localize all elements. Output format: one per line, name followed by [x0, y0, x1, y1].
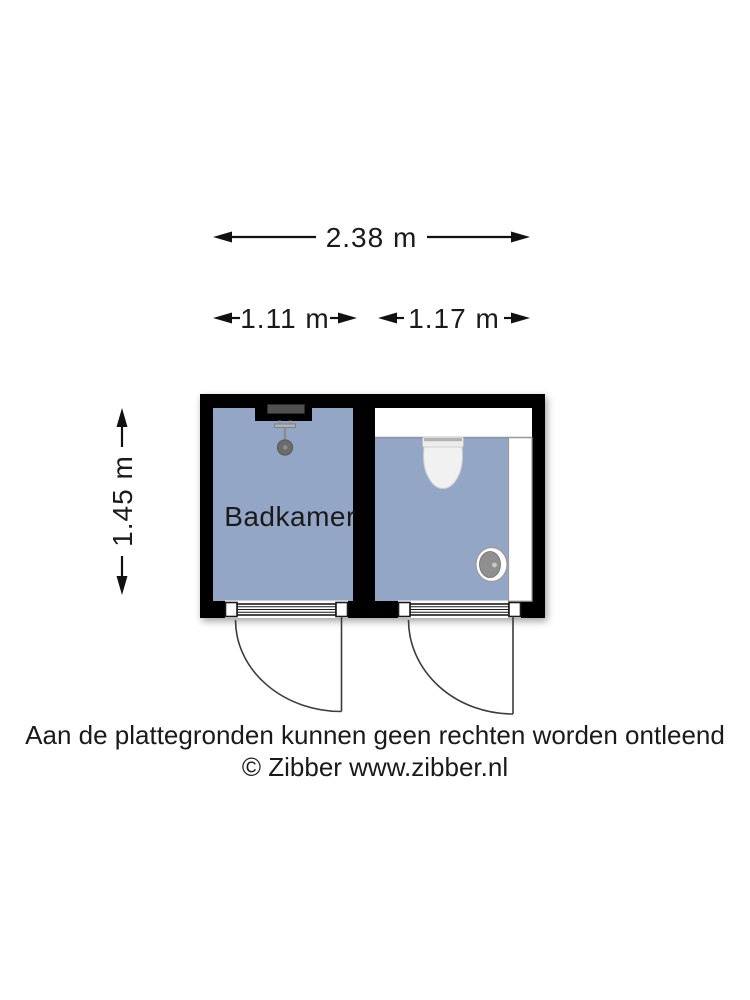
- sink-drain: [492, 563, 497, 568]
- door-arc: [236, 620, 342, 712]
- shower-niche-shelf: [268, 405, 305, 414]
- door-sill-right: [399, 603, 521, 617]
- arrow-right-icon: [511, 232, 530, 243]
- arrow-right-icon: [338, 313, 357, 324]
- toilet-lid-hinge: [424, 438, 462, 441]
- door-arc: [409, 620, 514, 714]
- disclaimer-text: Aan de plattegronden kunnen geen rechten…: [25, 720, 725, 750]
- arrow-left-icon: [378, 313, 397, 324]
- arrow-up-icon: [117, 408, 128, 427]
- copyright-text: © Zibber www.zibber.nl: [242, 752, 508, 782]
- door-swing-right: [409, 617, 514, 715]
- arrow-left-icon: [213, 232, 232, 243]
- dimension-label-badkamer-width: 1.11 m: [240, 303, 330, 334]
- dimension-badkamer-width: 1.11 m: [213, 303, 357, 334]
- door-sill-left: [226, 603, 348, 617]
- door-jamb: [336, 603, 348, 617]
- arrow-left-icon: [213, 313, 232, 324]
- dimension-label-total-width: 2.38 m: [326, 222, 418, 253]
- dimension-label-toilet-width: 1.17 m: [408, 303, 500, 334]
- door-swing-left: [236, 617, 342, 712]
- wall-cabinet: [509, 438, 533, 602]
- room-label-badkamer: Badkamer: [224, 501, 356, 532]
- dimension-plan-depth: 1.45 m: [107, 408, 138, 595]
- dimension-label-plan-depth: 1.45 m: [107, 455, 138, 547]
- door-jamb: [509, 603, 521, 617]
- sink-icon: [476, 548, 507, 582]
- shower-head-center: [283, 445, 287, 449]
- door-jamb: [226, 603, 238, 617]
- dimension-toilet-width: 1.17 m: [378, 303, 530, 334]
- shower-tap-bar: [275, 424, 296, 427]
- sink-basin: [480, 552, 501, 578]
- arrow-right-icon: [511, 313, 530, 324]
- floorplan-page: 2.38 m 1.11 m 1.17 m 1.45 m: [0, 0, 750, 1000]
- door-jamb: [399, 603, 411, 617]
- dimension-total-width: 2.38 m: [213, 222, 530, 253]
- arrow-down-icon: [117, 576, 128, 595]
- floor-plan-image: 2.38 m 1.11 m 1.17 m 1.45 m: [0, 0, 750, 1000]
- toilet-cistern: [375, 408, 532, 438]
